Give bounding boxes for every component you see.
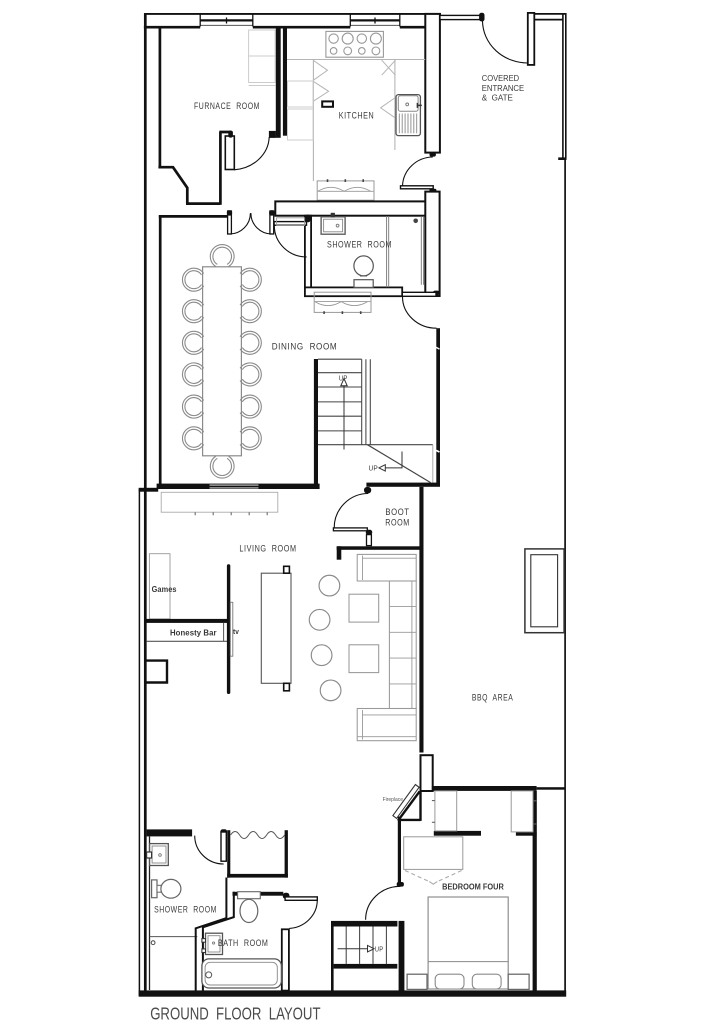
- svg-text:tv: tv: [233, 627, 240, 636]
- svg-text:ENTRANCE: ENTRANCE: [482, 83, 525, 93]
- svg-text:LIVING ROOM: LIVING ROOM: [239, 544, 296, 554]
- svg-text:UP: UP: [375, 946, 384, 953]
- svg-text:COVERED: COVERED: [482, 73, 519, 83]
- svg-text:UP: UP: [339, 376, 348, 383]
- svg-text:DINING ROOM: DINING ROOM: [272, 342, 338, 352]
- svg-text:BOOT: BOOT: [385, 507, 409, 517]
- svg-text:Honesty Bar: Honesty Bar: [170, 628, 217, 638]
- svg-text:BATH ROOM: BATH ROOM: [218, 938, 269, 948]
- svg-text:GROUND FLOOR LAYOUT: GROUND FLOOR LAYOUT: [150, 1004, 321, 1024]
- svg-text:Fireplace: Fireplace: [383, 797, 403, 803]
- svg-text:BEDROOM FOUR: BEDROOM FOUR: [442, 881, 504, 891]
- svg-text:FURNACE ROOM: FURNACE ROOM: [194, 101, 260, 111]
- svg-text:BBQ AREA: BBQ AREA: [472, 693, 514, 703]
- svg-text:UP: UP: [369, 466, 379, 473]
- svg-text:ROOM: ROOM: [385, 518, 410, 528]
- svg-text:& GATE: & GATE: [482, 93, 514, 103]
- svg-text:SHOWER ROOM: SHOWER ROOM: [154, 905, 217, 915]
- svg-text:SHOWER ROOM: SHOWER ROOM: [327, 240, 392, 250]
- svg-text:Games: Games: [152, 584, 177, 594]
- svg-text:KITCHEN: KITCHEN: [339, 111, 375, 121]
